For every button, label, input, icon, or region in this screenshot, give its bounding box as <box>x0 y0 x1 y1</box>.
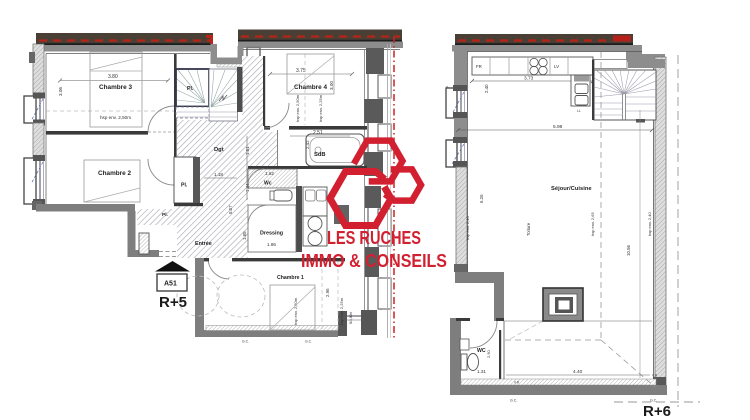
svg-text:1.31: 1.31 <box>477 369 486 374</box>
svg-text:3.00: 3.00 <box>329 81 334 90</box>
svg-text:hsp env. 2,50m: hsp env. 2,50m <box>295 94 300 122</box>
svg-text:LV: LV <box>554 64 559 69</box>
svg-text:Pl.: Pl. <box>162 212 168 218</box>
svg-text:1.85: 1.85 <box>242 231 247 240</box>
svg-text:3.80: 3.80 <box>108 74 118 80</box>
svg-text:A51: A51 <box>164 281 177 288</box>
svg-text:6.26: 6.26 <box>479 194 484 203</box>
svg-text:2.96: 2.96 <box>325 288 330 297</box>
svg-text:2.50: 2.50 <box>486 349 491 358</box>
svg-text:hsp env. 2,25m: hsp env. 2,25m <box>318 94 323 122</box>
svg-text:Chambre 1: Chambre 1 <box>277 275 304 281</box>
svg-text:1.62: 1.62 <box>265 171 274 176</box>
svg-text:Wc: Wc <box>264 181 272 187</box>
svg-text:Chambre 2: Chambre 2 <box>98 170 131 177</box>
svg-text:Dressing: Dressing <box>260 231 283 237</box>
svg-text:hsp env. 2,40: hsp env. 2,40 <box>465 216 470 240</box>
svg-text:5.98: 5.98 <box>553 124 563 130</box>
svg-text:1.86: 1.86 <box>267 242 276 247</box>
svg-text:IMMO & CONSEILS: IMMO & CONSEILS <box>301 250 447 271</box>
svg-text:2.42: 2.42 <box>305 140 310 149</box>
svg-text:hsp env. 2,25m: hsp env. 2,25m <box>339 297 344 325</box>
svg-text:N/1,80m: N/1,80m <box>349 312 353 324</box>
svg-text:G.C.: G.C. <box>242 340 249 344</box>
svg-text:1.18: 1.18 <box>214 172 223 177</box>
svg-text:R+5: R+5 <box>159 294 187 311</box>
svg-text:G.C.: G.C. <box>510 399 517 403</box>
svg-text:2.51: 2.51 <box>313 130 323 136</box>
svg-text:hsp env. 2,65: hsp env. 2,65 <box>590 212 595 236</box>
svg-text:G.C.: G.C. <box>305 340 312 344</box>
svg-text:V.R: V.R <box>652 374 658 378</box>
svg-text:2.40: 2.40 <box>484 84 489 93</box>
svg-text:hsp env. 2,50m: hsp env. 2,50m <box>100 115 131 120</box>
svg-text:SdB: SdB <box>314 152 326 158</box>
svg-text:10.56: 10.56 <box>626 244 631 256</box>
svg-text:3.06: 3.06 <box>58 87 63 96</box>
svg-text:Chambre 4: Chambre 4 <box>294 84 327 91</box>
svg-text:Pl.: Pl. <box>187 86 194 92</box>
svg-text:V.R: V.R <box>514 381 520 385</box>
svg-text:Toiture: Toiture <box>526 222 531 236</box>
svg-text:FR: FR <box>476 64 482 69</box>
svg-text:WC: WC <box>477 348 486 354</box>
svg-text:R+6: R+6 <box>643 403 671 420</box>
svg-text:Dgt: Dgt <box>214 147 224 153</box>
svg-text:1.44: 1.44 <box>245 183 250 192</box>
svg-text:5.07: 5.07 <box>228 205 233 214</box>
svg-text:LES RUCHES: LES RUCHES <box>327 227 421 248</box>
svg-text:3.75: 3.75 <box>296 68 306 74</box>
svg-text:Chambre 3: Chambre 3 <box>99 84 132 91</box>
svg-text:Entrée: Entrée <box>195 241 212 247</box>
svg-text:hsp env. 2,50m: hsp env. 2,50m <box>293 297 298 325</box>
svg-text:LL: LL <box>577 109 581 113</box>
svg-text:Pl.: Pl. <box>181 183 188 189</box>
svg-text:Séjour/Cuisine: Séjour/Cuisine <box>551 186 592 192</box>
svg-text:3.73: 3.73 <box>524 76 534 82</box>
svg-text:hsp env. 2,40: hsp env. 2,40 <box>647 212 652 236</box>
svg-text:1.61: 1.61 <box>245 146 250 155</box>
svg-text:4.40: 4.40 <box>573 369 583 375</box>
